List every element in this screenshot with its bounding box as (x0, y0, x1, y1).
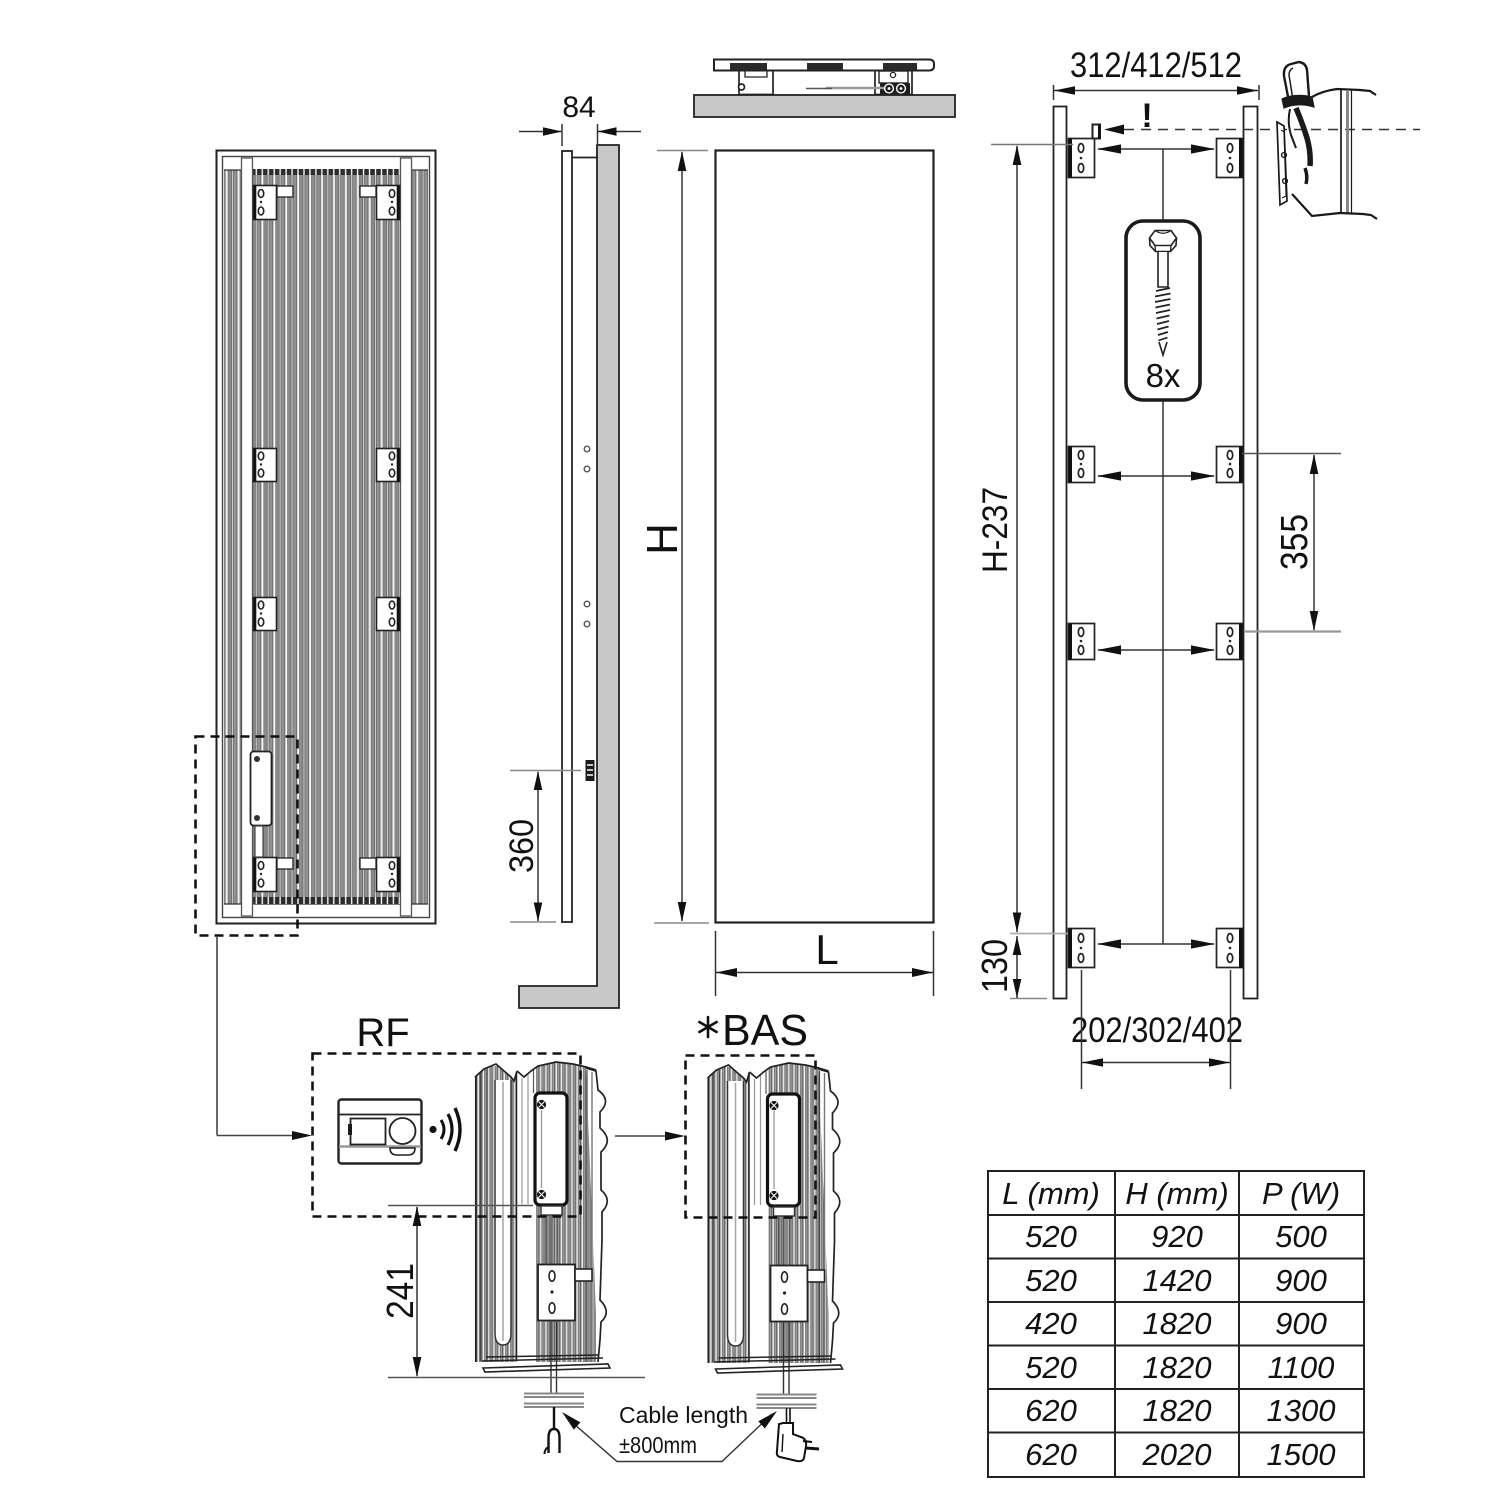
svg-text:1500: 1500 (1267, 1437, 1336, 1472)
svg-text:500: 500 (1275, 1219, 1327, 1254)
svg-text:1300: 1300 (1267, 1393, 1336, 1428)
svg-text:RF: RF (356, 1011, 409, 1055)
svg-text:H: H (638, 523, 687, 555)
svg-text:920: 920 (1151, 1219, 1203, 1254)
svg-text:520: 520 (1025, 1219, 1077, 1254)
svg-text:202/302/402: 202/302/402 (1071, 1011, 1243, 1050)
svg-text:±800mm: ±800mm (619, 1432, 697, 1458)
svg-text:620: 620 (1025, 1437, 1077, 1472)
svg-text:84: 84 (562, 91, 595, 124)
svg-text:355: 355 (1274, 514, 1316, 570)
svg-text:1420: 1420 (1143, 1263, 1212, 1298)
svg-text:8x: 8x (1146, 357, 1181, 394)
svg-text:900: 900 (1275, 1263, 1327, 1298)
svg-text:P (W): P (W) (1262, 1176, 1340, 1211)
svg-text:BAS: BAS (722, 1006, 808, 1055)
svg-text:H (mm): H (mm) (1125, 1176, 1228, 1211)
svg-text:130: 130 (974, 939, 1015, 993)
svg-text:420: 420 (1025, 1306, 1077, 1341)
svg-text:L (mm): L (mm) (1002, 1176, 1100, 1211)
svg-text:2020: 2020 (1142, 1437, 1212, 1472)
svg-text:900: 900 (1275, 1306, 1327, 1341)
svg-text:H-237: H-237 (976, 487, 1015, 573)
svg-text:1820: 1820 (1143, 1350, 1212, 1385)
svg-text:1820: 1820 (1143, 1393, 1212, 1428)
svg-text:1100: 1100 (1268, 1350, 1335, 1385)
svg-text:620: 620 (1025, 1393, 1077, 1428)
svg-text:L: L (815, 926, 838, 973)
svg-text:520: 520 (1025, 1350, 1077, 1385)
svg-text:1820: 1820 (1143, 1306, 1212, 1341)
svg-text:241: 241 (380, 1263, 422, 1319)
svg-text:520: 520 (1025, 1263, 1077, 1298)
svg-text:312/412/512: 312/412/512 (1070, 46, 1242, 85)
svg-text:360: 360 (503, 819, 541, 873)
svg-text:Cable length: Cable length (619, 1402, 748, 1428)
